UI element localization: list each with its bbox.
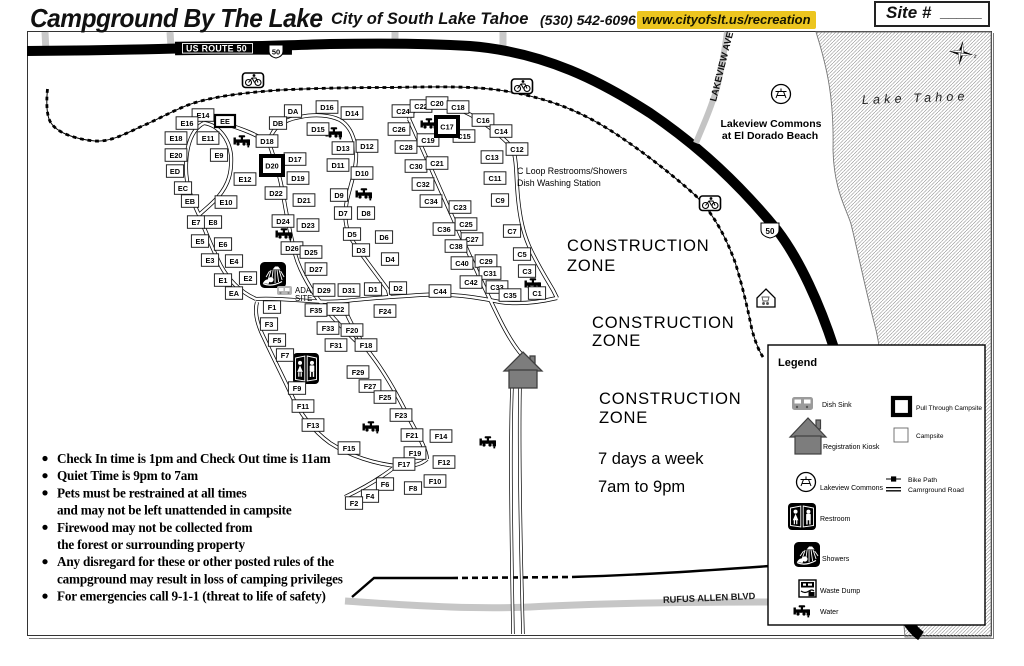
svg-text:C12: C12 bbox=[510, 145, 523, 154]
svg-text:D26: D26 bbox=[285, 244, 298, 253]
svg-text:D4: D4 bbox=[385, 255, 395, 264]
svg-text:F17: F17 bbox=[398, 460, 411, 469]
svg-text:Camrground Road: Camrground Road bbox=[908, 487, 964, 494]
svg-text:E5: E5 bbox=[196, 237, 205, 246]
svg-text:C34: C34 bbox=[424, 197, 438, 206]
svg-text:ED: ED bbox=[170, 167, 180, 176]
svg-text:Lakeview Commons: Lakeview Commons bbox=[721, 118, 822, 130]
svg-text:F7: F7 bbox=[281, 351, 290, 360]
svg-text:Waste Dump: Waste Dump bbox=[820, 588, 860, 595]
svg-text:E7: E7 bbox=[192, 218, 201, 227]
svg-text:D15: D15 bbox=[311, 125, 324, 134]
svg-text:EC: EC bbox=[178, 184, 189, 193]
svg-text:ZONE: ZONE bbox=[599, 409, 648, 427]
svg-text:C13: C13 bbox=[485, 153, 498, 162]
svg-text:C24: C24 bbox=[396, 107, 410, 116]
svg-text:F8: F8 bbox=[409, 484, 418, 493]
svg-text:E20: E20 bbox=[170, 151, 183, 160]
svg-text:F9: F9 bbox=[293, 384, 302, 393]
svg-text:C28: C28 bbox=[399, 143, 412, 152]
svg-text:C3: C3 bbox=[522, 267, 531, 276]
svg-text:Lakeview Commons: Lakeview Commons bbox=[820, 485, 884, 492]
svg-text:EB: EB bbox=[185, 197, 195, 206]
svg-text:ZONE: ZONE bbox=[592, 332, 641, 350]
svg-text:C38: C38 bbox=[449, 242, 462, 251]
svg-text:D25: D25 bbox=[304, 248, 317, 257]
svg-text:D8: D8 bbox=[361, 209, 370, 218]
svg-text:F3: F3 bbox=[265, 320, 274, 329]
svg-text:F1: F1 bbox=[268, 303, 277, 312]
svg-text:C26: C26 bbox=[392, 125, 405, 134]
svg-text:E14: E14 bbox=[197, 111, 211, 120]
svg-text:Water: Water bbox=[820, 609, 839, 616]
svg-text:F12: F12 bbox=[438, 458, 451, 467]
svg-text:D13: D13 bbox=[336, 144, 349, 153]
svg-text:C25: C25 bbox=[459, 220, 472, 229]
svg-text:Restroom: Restroom bbox=[820, 516, 851, 523]
svg-text:D18: D18 bbox=[260, 137, 273, 146]
svg-text:For emergencies call 9-1-1 (th: For emergencies call 9-1-1 (threat to li… bbox=[57, 589, 326, 604]
svg-text:F11: F11 bbox=[297, 402, 309, 411]
svg-text:Quiet Time is 9pm to 7am: Quiet Time is 9pm to 7am bbox=[57, 468, 198, 483]
svg-text:C9: C9 bbox=[495, 196, 504, 205]
svg-text:F5: F5 bbox=[273, 336, 282, 345]
svg-text:F22: F22 bbox=[332, 305, 345, 314]
svg-text:E12: E12 bbox=[239, 175, 252, 184]
svg-text:D27: D27 bbox=[309, 265, 322, 274]
svg-text:C21: C21 bbox=[430, 159, 443, 168]
svg-text:E3: E3 bbox=[206, 256, 215, 265]
svg-text:D9: D9 bbox=[334, 191, 343, 200]
svg-text:C14: C14 bbox=[494, 127, 508, 136]
svg-text:CONSTRUCTION: CONSTRUCTION bbox=[567, 237, 710, 255]
svg-text:7 days a week: 7 days a week bbox=[598, 450, 704, 468]
svg-text:F21: F21 bbox=[406, 431, 419, 440]
svg-text:F29: F29 bbox=[352, 368, 365, 377]
svg-text:E16: E16 bbox=[181, 119, 194, 128]
svg-text:F14: F14 bbox=[435, 432, 449, 441]
svg-text:the forest or surrounding prop: the forest or surrounding property bbox=[57, 537, 245, 552]
svg-text:C19: C19 bbox=[421, 136, 434, 145]
svg-text:Check In time is 1pm and Check: Check In time is 1pm and Check Out time … bbox=[57, 451, 331, 466]
svg-text:E4: E4 bbox=[230, 257, 240, 266]
svg-text:E18: E18 bbox=[170, 134, 183, 143]
svg-text:E8: E8 bbox=[209, 218, 218, 227]
svg-text:D6: D6 bbox=[379, 233, 388, 242]
svg-text:campground may result in loss: campground may result in loss of camping… bbox=[57, 571, 343, 586]
svg-text:F35: F35 bbox=[310, 306, 323, 315]
svg-text:50: 50 bbox=[272, 48, 280, 57]
svg-text:F15: F15 bbox=[343, 444, 356, 453]
svg-text:DA: DA bbox=[288, 107, 299, 116]
svg-text:D23: D23 bbox=[301, 221, 314, 230]
svg-text:Bike Path: Bike Path bbox=[908, 477, 937, 484]
svg-text:EE: EE bbox=[220, 117, 230, 126]
svg-text:F2: F2 bbox=[350, 499, 359, 508]
svg-text:Pull Through Campsite: Pull Through Campsite bbox=[916, 405, 982, 412]
svg-text:C31: C31 bbox=[483, 269, 496, 278]
svg-text:C17: C17 bbox=[440, 123, 453, 132]
svg-text:D1: D1 bbox=[368, 285, 377, 294]
svg-text:E2: E2 bbox=[244, 274, 253, 283]
svg-text:C7: C7 bbox=[507, 227, 516, 236]
svg-text:F23: F23 bbox=[395, 411, 408, 420]
svg-text:F19: F19 bbox=[409, 449, 422, 458]
svg-text:D19: D19 bbox=[291, 174, 304, 183]
svg-text:D2: D2 bbox=[393, 284, 402, 293]
svg-text:Dish Sink: Dish Sink bbox=[822, 402, 852, 409]
svg-text:F4: F4 bbox=[366, 492, 375, 501]
svg-text:ZONE: ZONE bbox=[567, 257, 616, 275]
svg-text:C11: C11 bbox=[489, 174, 502, 183]
svg-text:C18: C18 bbox=[451, 103, 464, 112]
svg-text:D3: D3 bbox=[356, 246, 365, 255]
svg-text:C20: C20 bbox=[430, 99, 443, 108]
svg-text:C40: C40 bbox=[455, 259, 468, 268]
svg-text:F18: F18 bbox=[360, 341, 373, 350]
svg-text:C Loop Restrooms/Showers: C Loop Restrooms/Showers bbox=[517, 166, 628, 176]
svg-text:E9: E9 bbox=[215, 151, 224, 160]
svg-text:CONSTRUCTION: CONSTRUCTION bbox=[599, 390, 742, 408]
svg-text:D24: D24 bbox=[276, 217, 290, 226]
svg-text:and may not be left unattended: and may not be left unattended in campsi… bbox=[57, 503, 292, 518]
svg-text:F25: F25 bbox=[379, 393, 392, 402]
svg-text:Pets must be restrained at all: Pets must be restrained at all times bbox=[57, 485, 247, 500]
svg-text:D10: D10 bbox=[355, 169, 368, 178]
svg-text:C29: C29 bbox=[479, 257, 492, 266]
svg-text:E1: E1 bbox=[219, 276, 228, 285]
svg-text:D29: D29 bbox=[317, 286, 330, 295]
svg-text:CONSTRUCTION: CONSTRUCTION bbox=[592, 314, 735, 332]
svg-text:Registration Kiosk: Registration Kiosk bbox=[823, 444, 880, 451]
svg-text:Showers: Showers bbox=[822, 556, 850, 563]
svg-text:F10: F10 bbox=[429, 477, 442, 486]
svg-text:D16: D16 bbox=[320, 103, 333, 112]
svg-text:EA: EA bbox=[229, 289, 240, 298]
svg-text:SITE: SITE bbox=[295, 294, 312, 303]
svg-text:C1: C1 bbox=[532, 289, 541, 298]
svg-text:7am to 9pm: 7am to 9pm bbox=[598, 478, 685, 496]
svg-text:C32: C32 bbox=[416, 180, 429, 189]
svg-text:C44: C44 bbox=[433, 287, 447, 296]
svg-text:F13: F13 bbox=[307, 421, 320, 430]
svg-text:D14: D14 bbox=[345, 109, 359, 118]
svg-text:E10: E10 bbox=[220, 198, 233, 207]
svg-text:F31: F31 bbox=[330, 341, 343, 350]
svg-text:C35: C35 bbox=[503, 291, 516, 300]
svg-text:C30: C30 bbox=[409, 162, 422, 171]
svg-text:C36: C36 bbox=[437, 225, 450, 234]
svg-text:US ROUTE 50: US ROUTE 50 bbox=[186, 44, 247, 54]
svg-text:F24: F24 bbox=[379, 307, 393, 316]
svg-text:C23: C23 bbox=[453, 203, 466, 212]
svg-text:D7: D7 bbox=[338, 209, 347, 218]
svg-text:C42: C42 bbox=[464, 278, 477, 287]
svg-text:E6: E6 bbox=[219, 240, 228, 249]
svg-text:C5: C5 bbox=[517, 250, 526, 259]
svg-text:D21: D21 bbox=[297, 196, 310, 205]
svg-text:D11: D11 bbox=[332, 161, 345, 170]
svg-text:F27: F27 bbox=[364, 382, 377, 391]
svg-text:Firewood may not be collected: Firewood may not be collected from bbox=[57, 520, 252, 535]
svg-text:F20: F20 bbox=[346, 326, 359, 335]
svg-text:C16: C16 bbox=[476, 116, 489, 125]
svg-text:D12: D12 bbox=[360, 142, 373, 151]
svg-text:Any disregard for these or oth: Any disregard for these or other posted … bbox=[57, 554, 334, 569]
svg-text:DB: DB bbox=[273, 119, 284, 128]
svg-text:F33: F33 bbox=[322, 324, 335, 333]
svg-text:D22: D22 bbox=[269, 189, 282, 198]
svg-text:F6: F6 bbox=[381, 480, 390, 489]
svg-text:D5: D5 bbox=[347, 230, 356, 239]
svg-text:D20: D20 bbox=[265, 162, 278, 171]
svg-text:Legend: Legend bbox=[778, 357, 817, 369]
svg-text:Campsite: Campsite bbox=[916, 433, 944, 440]
svg-text:Dish Washing Station: Dish Washing Station bbox=[517, 178, 601, 188]
svg-text:E11: E11 bbox=[202, 134, 215, 143]
svg-text:D17: D17 bbox=[288, 155, 301, 164]
svg-text:D31: D31 bbox=[342, 286, 355, 295]
svg-text:at El Dorado Beach: at El Dorado Beach bbox=[722, 130, 818, 142]
svg-text:50: 50 bbox=[766, 227, 775, 236]
